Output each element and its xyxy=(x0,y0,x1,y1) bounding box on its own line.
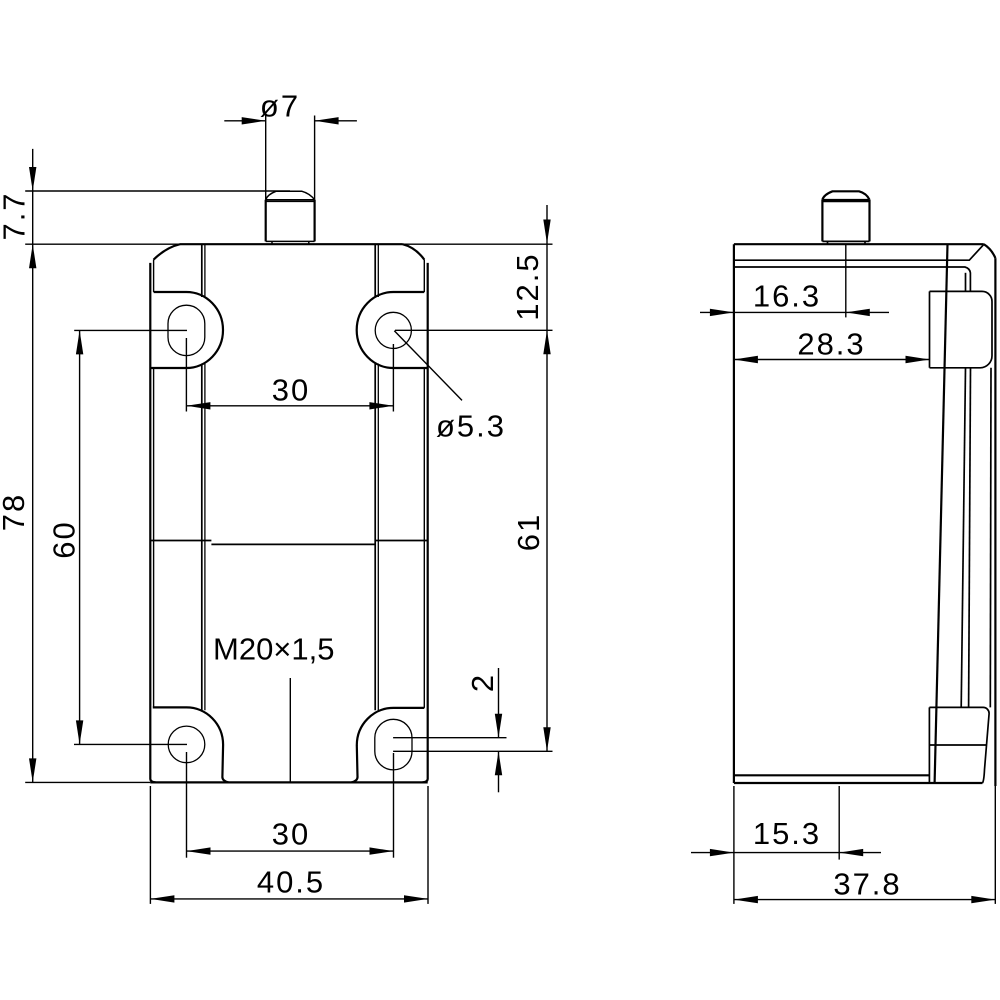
svg-text:60: 60 xyxy=(47,520,82,558)
svg-text:30: 30 xyxy=(272,373,310,408)
svg-text:ø7: ø7 xyxy=(260,89,300,124)
svg-text:28.3: 28.3 xyxy=(797,327,865,362)
svg-text:7.7: 7.7 xyxy=(0,191,32,240)
svg-text:61: 61 xyxy=(511,513,546,551)
svg-text:12.5: 12.5 xyxy=(510,252,545,320)
svg-text:40.5: 40.5 xyxy=(257,864,325,899)
svg-text:ø5.3: ø5.3 xyxy=(436,409,506,444)
svg-text:37.8: 37.8 xyxy=(833,867,901,902)
svg-text:2: 2 xyxy=(465,673,500,692)
svg-text:M20×1,5: M20×1,5 xyxy=(213,632,335,667)
svg-text:30: 30 xyxy=(272,817,310,852)
svg-text:15.3: 15.3 xyxy=(753,816,821,851)
svg-text:78: 78 xyxy=(0,493,31,531)
svg-text:16.3: 16.3 xyxy=(753,279,821,314)
